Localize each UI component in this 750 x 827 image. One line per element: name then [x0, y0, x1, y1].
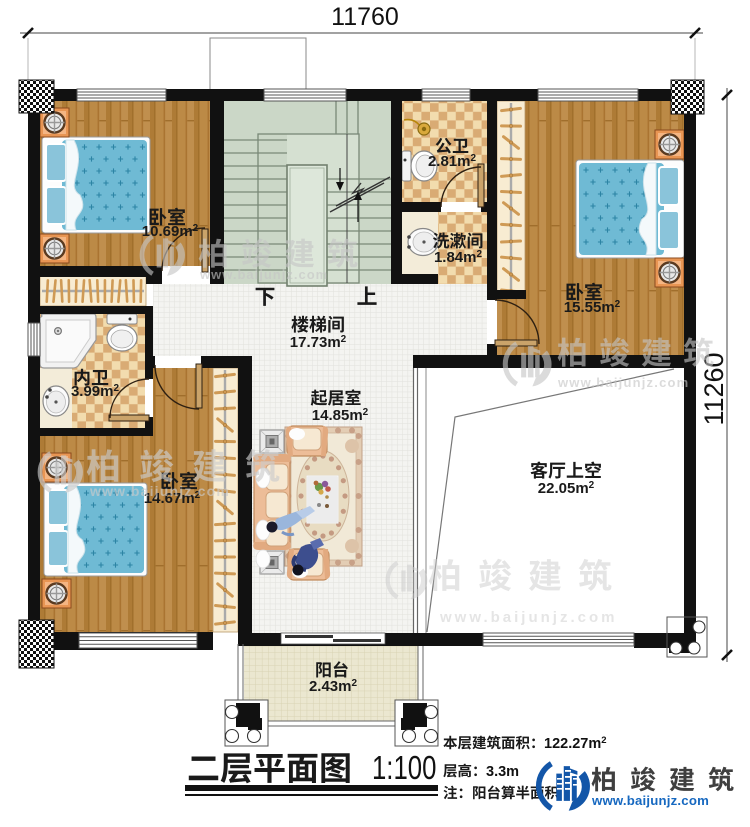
svg-text:3.3m: 3.3m [486, 764, 519, 780]
svg-text:www.baijunjz.com: www.baijunjz.com [89, 483, 230, 499]
svg-text:14.85m2: 14.85m2 [312, 407, 369, 424]
svg-text:www.baijunjz.com: www.baijunjz.com [439, 609, 617, 626]
svg-text:122.27m2: 122.27m2 [544, 735, 607, 752]
svg-text:1.84m2: 1.84m2 [434, 249, 483, 266]
svg-text:2.81m2: 2.81m2 [428, 153, 477, 170]
svg-text:1:100: 1:100 [372, 750, 436, 787]
svg-text:www.baijunjz.com: www.baijunjz.com [591, 793, 709, 808]
svg-text:15.55m2: 15.55m2 [564, 299, 621, 316]
svg-text:11760: 11760 [331, 3, 399, 31]
svg-text:www.baijunjz.com: www.baijunjz.com [199, 267, 328, 282]
svg-text:22.05m2: 22.05m2 [538, 480, 595, 497]
svg-text:11260: 11260 [699, 352, 729, 425]
svg-text:3.99m2: 3.99m2 [71, 383, 120, 400]
svg-text:2.43m2: 2.43m2 [309, 678, 358, 695]
svg-text:17.73m2: 17.73m2 [290, 334, 347, 351]
svg-text:www.baijunjz.com: www.baijunjz.com [557, 375, 689, 390]
